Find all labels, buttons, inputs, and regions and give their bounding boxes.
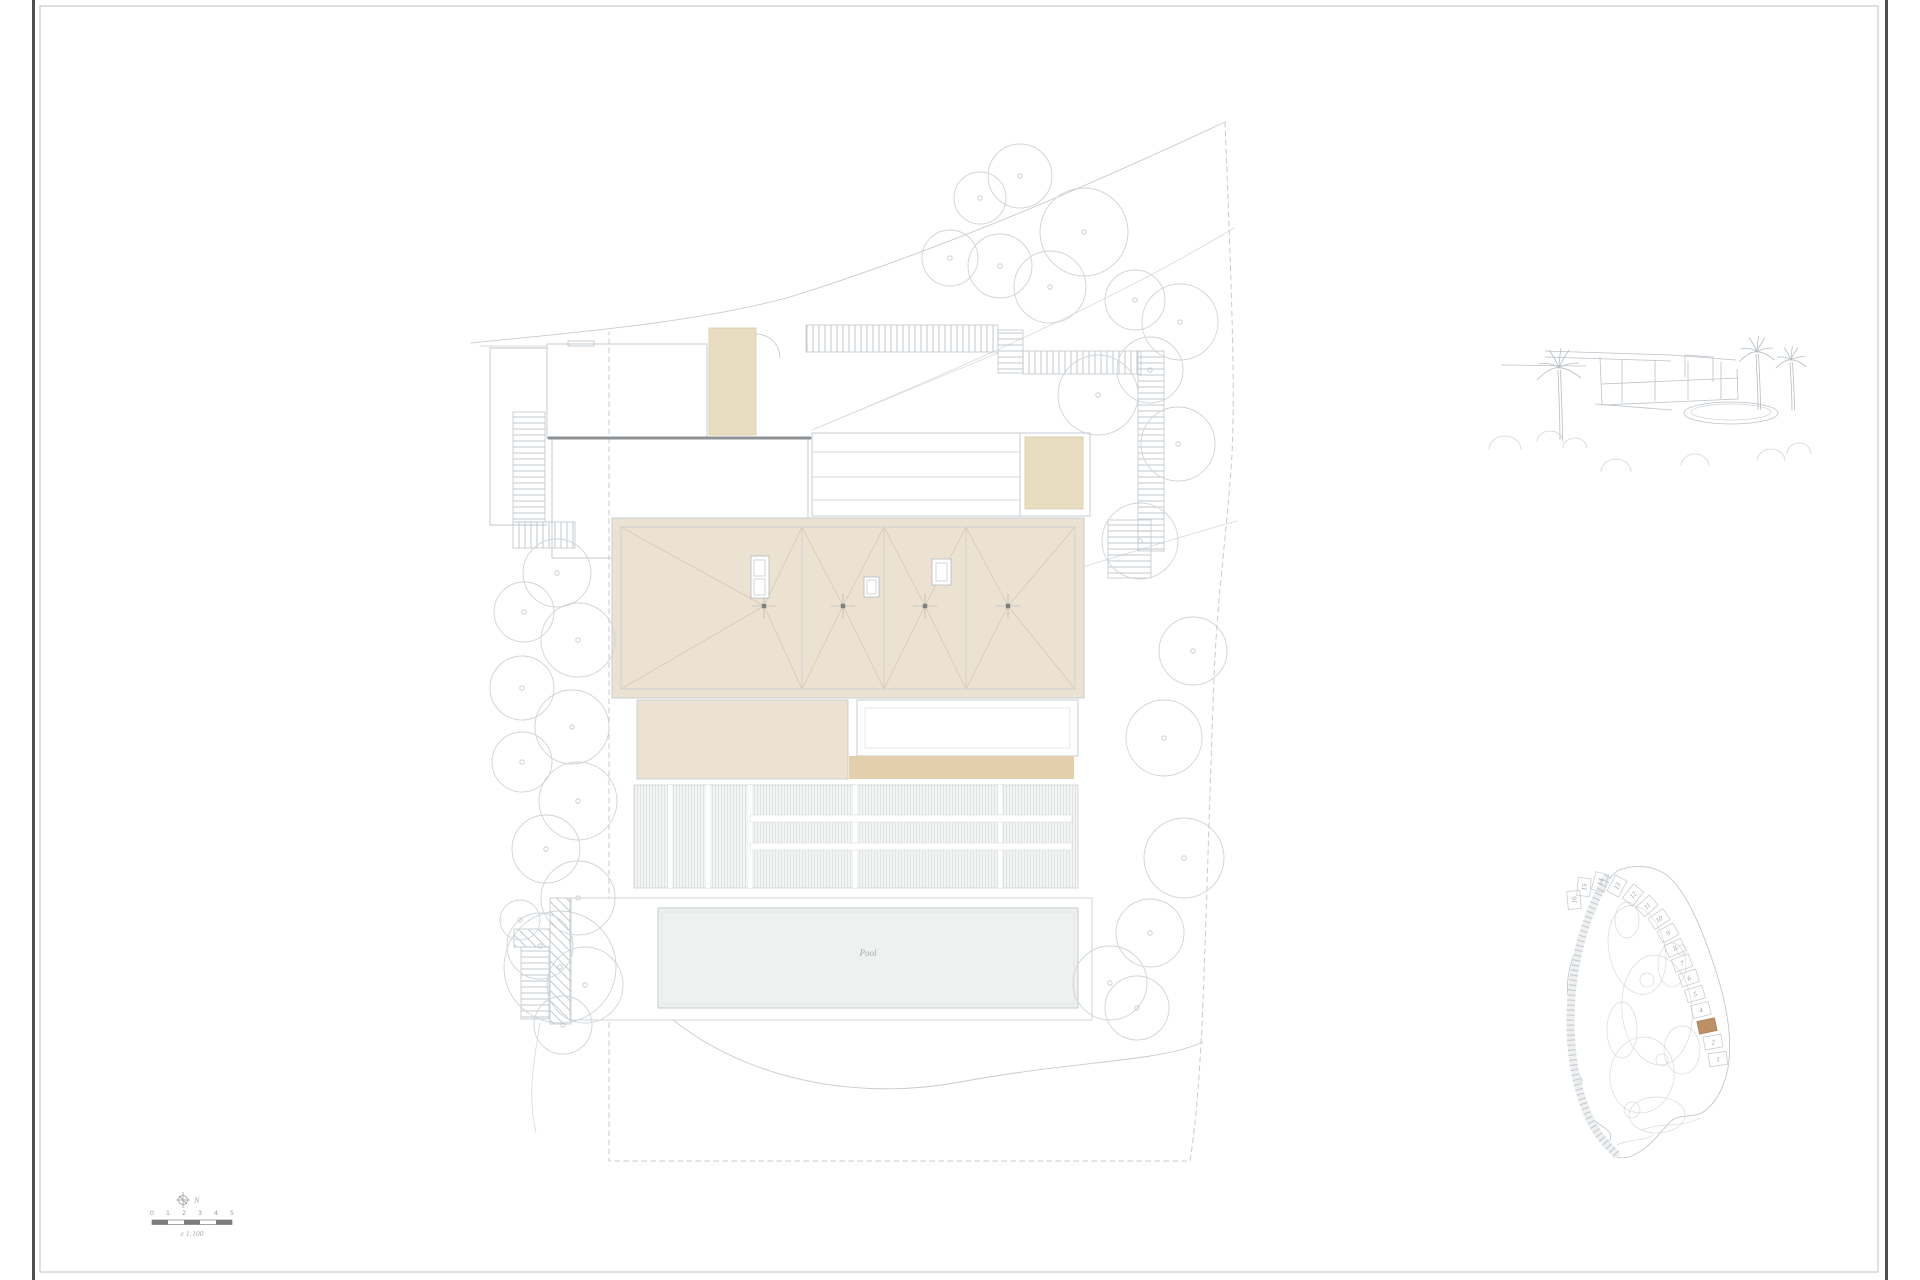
tree-symbol	[539, 762, 617, 840]
pool-area: Pool	[570, 898, 1092, 1020]
tan-roof-patch	[1025, 437, 1083, 509]
tree-symbol	[1144, 818, 1224, 898]
tan-strip	[849, 756, 1074, 779]
scale-tick: 0	[150, 1209, 154, 1217]
lot-number: 15	[1580, 883, 1589, 891]
tree-trunk-dot	[544, 847, 548, 851]
palm-trees	[1537, 336, 1806, 440]
tree-trunk-dot	[978, 196, 982, 200]
tree-trunk-dot	[1182, 856, 1186, 860]
scale-tick: 5	[230, 1209, 234, 1217]
tree-trunk-dot	[1018, 174, 1022, 178]
upper-middle-building	[812, 353, 1090, 516]
scale-tick: 1	[166, 1209, 170, 1217]
pool-label: Pool	[859, 948, 877, 958]
roof-drain	[923, 604, 927, 608]
roof-drain	[1006, 604, 1010, 608]
elevation-sketch	[1489, 336, 1811, 472]
tree-symbol	[954, 172, 1006, 224]
tree-trunk-dot	[576, 799, 580, 803]
tree-symbol	[523, 539, 591, 607]
tree-trunk-dot	[1133, 298, 1137, 302]
white-court	[857, 700, 1078, 756]
garden-stair	[521, 947, 549, 1019]
scale-caption: e 1:100	[181, 1229, 204, 1238]
sheet-edge-right	[1885, 0, 1888, 1280]
tree-trunk-dot	[520, 760, 524, 764]
pool	[658, 908, 1078, 1008]
north-label: N	[193, 1196, 200, 1205]
scale-tick: 3	[198, 1209, 202, 1217]
tree-trunk-dot	[520, 686, 524, 690]
tree-symbol	[1126, 700, 1202, 776]
palm-tree-icon	[1776, 346, 1807, 410]
tree-symbol	[1105, 270, 1165, 330]
tree-trunk-dot	[998, 264, 1002, 268]
tree-trunk-dot	[570, 725, 574, 729]
tree-trunk-dot	[948, 256, 952, 260]
tree-trunk-dot	[1191, 649, 1195, 653]
mid-terraces	[637, 700, 1078, 779]
lot-parcel: 16	[1567, 890, 1582, 909]
tree-symbol	[968, 234, 1032, 298]
timber-deck	[634, 785, 1078, 888]
site-plan-drawing: Pool	[0, 0, 1920, 1280]
tree-symbol	[512, 815, 580, 883]
tree-trunk-dot	[1162, 736, 1166, 740]
tree-trunk-dot	[1096, 393, 1100, 397]
scale-bar: 0 1 2 3 4 5 e 1:100	[150, 1209, 234, 1238]
tree-trunk-dot	[576, 638, 580, 642]
tree-symbol	[988, 144, 1052, 208]
main-roof	[612, 518, 1084, 698]
roof-drain	[762, 604, 766, 608]
entry-volume	[709, 328, 780, 435]
tree-symbol	[1014, 251, 1086, 323]
palm-tree-icon	[1537, 348, 1581, 440]
lot-parcel: 15	[1577, 877, 1592, 896]
tree-trunk-dot	[1178, 320, 1182, 324]
north-indicator: N	[176, 1192, 200, 1208]
main-site-plan: Pool	[471, 122, 1237, 1161]
door-swing-arc	[756, 334, 780, 358]
tree-trunk-dot	[1176, 442, 1180, 446]
west-stair	[513, 412, 545, 522]
palm-tree-icon	[1739, 336, 1774, 410]
tree-symbol	[1040, 188, 1128, 276]
beige-terrace	[637, 700, 848, 779]
tree-symbol	[535, 690, 609, 764]
tree-trunk-dot	[1108, 981, 1112, 985]
roof-drain	[841, 604, 845, 608]
tree-symbol	[541, 603, 615, 677]
tree-symbol	[490, 656, 554, 720]
tree-trunk-dot	[1148, 931, 1152, 935]
tree-trunk-dot	[1048, 285, 1052, 289]
tree-symbol	[1159, 617, 1227, 685]
scale-tick: 2	[182, 1209, 186, 1217]
tree-symbol	[922, 230, 978, 286]
tree-trunk-dot	[1082, 230, 1086, 234]
tree-trunk-dot	[555, 571, 559, 575]
key-map: 1245678910111213141516	[1567, 866, 1730, 1157]
drawing-sheet: Pool	[0, 0, 1920, 1280]
lot-number: 16	[1570, 896, 1579, 904]
tree-symbol	[1116, 899, 1184, 967]
sheet-edge-left	[32, 0, 35, 1280]
tree-symbol	[494, 582, 554, 642]
tree-trunk-dot	[522, 610, 526, 614]
tree-symbol	[1142, 284, 1218, 360]
scale-tick: 4	[214, 1209, 218, 1217]
